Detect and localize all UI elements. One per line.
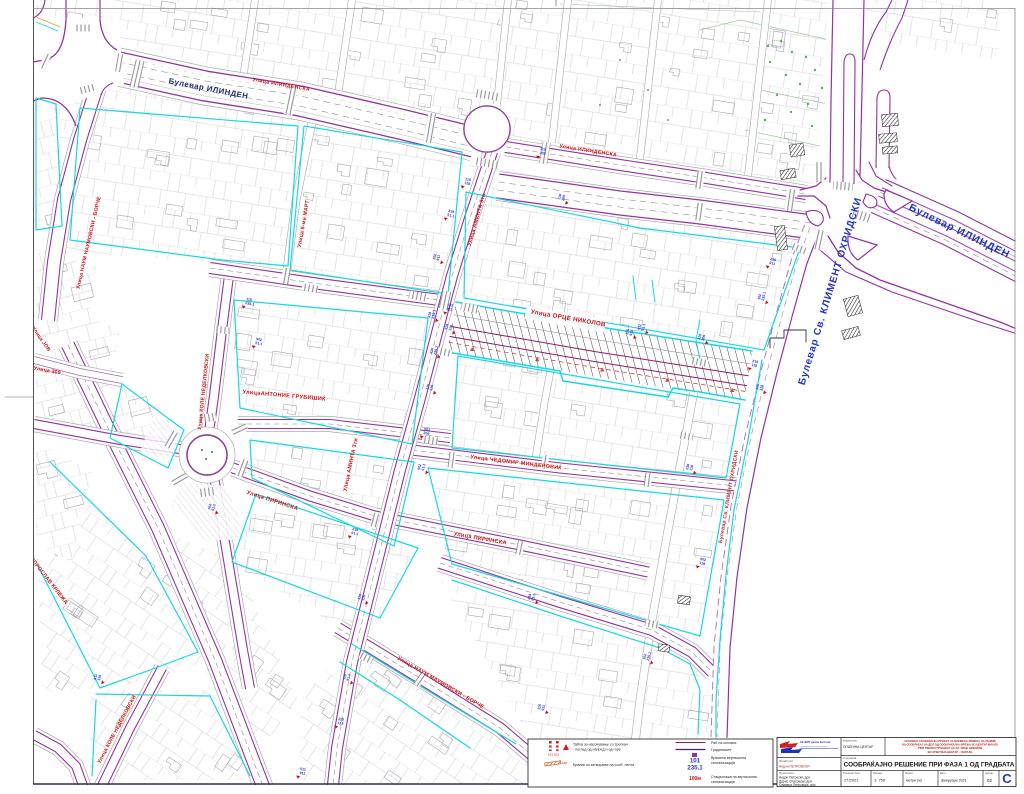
svg-text:100м: 100м — [689, 776, 701, 782]
svg-text:ВО ОПШТИНА ЦЕНТАР - СКОПЈЕ): ВО ОПШТИНА ЦЕНТАР - СКОПЈЕ) — [928, 750, 973, 754]
svg-text:К21 К22: К21 К22 — [548, 753, 559, 757]
svg-text:911: 911 — [299, 771, 305, 776]
svg-text:27/2021: 27/2021 — [844, 778, 859, 783]
svg-text:Оливера Петровска, дси: Оливера Петровска, дси — [779, 783, 816, 787]
svg-text:101: 101 — [690, 758, 701, 765]
svg-text:- поглед од напред и од горе: - поглед од напред и од горе — [573, 748, 621, 752]
svg-text:C: C — [1002, 771, 1012, 786]
svg-text:Проектанти:: Проектанти: — [779, 771, 795, 775]
svg-text:Изработил:: Изработил: — [779, 759, 794, 763]
svg-text:Стационажа на вертикална: Стационажа на вертикална — [711, 775, 757, 779]
svg-text:02: 02 — [987, 778, 993, 783]
svg-text:235.1: 235.1 — [687, 765, 703, 772]
svg-text:Андон ПЕТРОВСКИ: Андон ПЕТРОВСКИ — [779, 765, 810, 769]
svg-text:118: 118 — [337, 721, 343, 726]
svg-text:Размер:: Размер: — [873, 771, 883, 775]
svg-text:Браник за затворање на сооб. л: Браник за затворање на сооб. лента — [573, 763, 634, 767]
svg-text:трговијаидизајнинженеринг: трговијаидизајнинженеринг — [800, 745, 828, 748]
svg-text:Раб на коловоз: Раб на коловоз — [711, 741, 737, 745]
svg-text:метри (м): метри (м) — [906, 779, 922, 783]
svg-text:Цртеж:: Цртеж: — [985, 771, 994, 775]
svg-text:Нарачател:: Нарачател: — [843, 739, 858, 743]
svg-text:СООБРАЌАЈНО РЕШЕНИЕ ПРИ ФАЗА 1: СООБРАЌАЈНО РЕШЕНИЕ ПРИ ФАЗА 1 ОД ГРАДБА… — [844, 760, 1015, 769]
svg-text:сигнализација: сигнализација — [711, 761, 735, 765]
svg-text:Градилиште: Градилиште — [711, 748, 731, 752]
svg-text:Мерки:: Мерки: — [905, 771, 914, 775]
svg-text:(ПРИ РЕКОНСТРУКЦИЈА НА УЛ. ОРЦ: (ПРИ РЕКОНСТРУКЦИЈА НА УЛ. ОРЦЕ НИКОЛОВ — [918, 746, 983, 750]
svg-text:1: 750: 1: 750 — [874, 778, 886, 783]
svg-text:209: 209 — [539, 151, 545, 156]
svg-text:Времена вертикална: Времена вертикална — [711, 756, 746, 760]
svg-text:сигнализација: сигнализација — [711, 780, 735, 784]
svg-text:Табла за насочување со трепкач: Табла за насочување со трепкач — [573, 743, 628, 747]
svg-text:Содржина:: Содржина: — [843, 756, 857, 760]
svg-text:ЗК ФИТ дизен Битола: ЗК ФИТ дизен Битола — [800, 740, 830, 744]
svg-text:ОПШТИНА ЦЕНТАР: ОПШТИНА ЦЕНТАР — [843, 745, 873, 749]
svg-text:911: 911 — [446, 307, 452, 312]
svg-text:К20: К20 — [562, 761, 567, 765]
svg-text:Технички број:: Технички број: — [843, 771, 861, 775]
svg-text:Дата:: Дата: — [940, 771, 947, 775]
svg-text:февруари 2021: февруари 2021 — [941, 779, 967, 783]
